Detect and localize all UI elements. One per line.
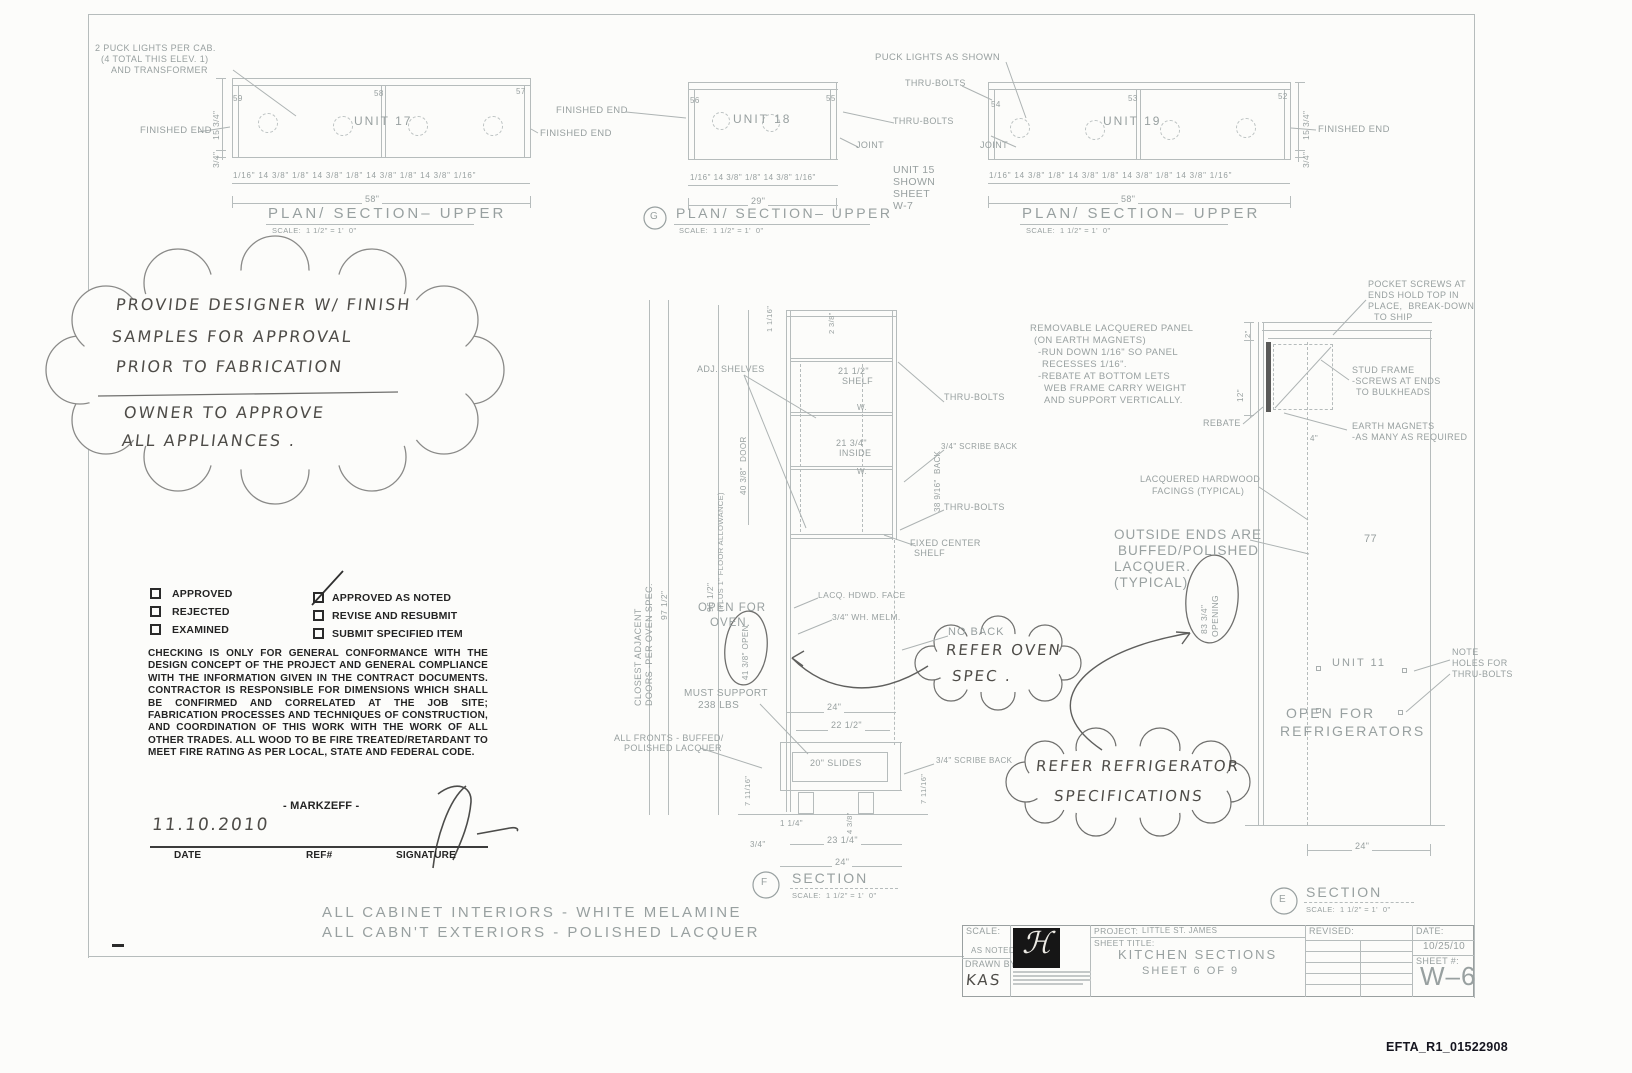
- shelf-line: [790, 538, 892, 539]
- ln: [1305, 940, 1412, 941]
- panel-mark: 54: [991, 101, 1001, 110]
- stud-frame-note: -SCREWS AT ENDS: [1352, 377, 1441, 387]
- dim-line: [988, 203, 1290, 204]
- fridge-spec-cloud: [1006, 728, 1250, 836]
- ln: [688, 82, 689, 160]
- sheet-title: KITCHEN SECTIONS: [1118, 948, 1277, 962]
- border-bottom: [88, 956, 964, 957]
- ln: [688, 82, 838, 83]
- shelf-line: [790, 361, 892, 362]
- dim-note: CLOSEST ADJACENT: [634, 608, 644, 706]
- shelf-line: [790, 466, 892, 467]
- titleblock-label: REVISED:: [1309, 927, 1354, 937]
- dim-label: (PLUS 1" FLOOR ALLOWANCE): [717, 492, 725, 612]
- shelf-line: [790, 415, 892, 416]
- floor-line: [1245, 825, 1445, 826]
- unit-label: UNIT 19: [1103, 115, 1161, 128]
- removable-panel-note: (ON EARTH MAGNETS): [1034, 336, 1146, 346]
- unit-label: UNIT 18: [733, 113, 791, 126]
- dim-label: 40 3/8" DOOR: [740, 436, 749, 495]
- ln: [232, 78, 233, 158]
- cloud-note-line: SAMPLES FOR APPROVAL: [111, 328, 353, 345]
- dim-label: 3/4": [212, 152, 221, 168]
- checkbox-submit-item: [313, 628, 324, 639]
- dim-label: 4": [1310, 435, 1318, 444]
- fridge-spec-arrow: [1070, 632, 1190, 750]
- ln: [1305, 925, 1306, 997]
- puck-light: [1236, 118, 1256, 138]
- finished-end-label: FINISHED END: [140, 126, 212, 136]
- adj-shelves-label: ADJ. SHELVES: [697, 365, 765, 375]
- thru-bolts-label: THRU-BOLTS: [944, 393, 1005, 403]
- checkbox-rejected: [150, 606, 161, 617]
- shelf-line: [790, 469, 892, 470]
- unit15-note: W-7: [893, 201, 913, 212]
- stamp-field-label: DATE: [174, 851, 201, 862]
- dim-label: 7 11/16": [920, 774, 928, 804]
- dim-label: 38 9/16" BACK: [934, 451, 943, 512]
- view-title: SECTION: [792, 871, 868, 886]
- ln: [790, 310, 791, 812]
- ln: [780, 742, 781, 790]
- material-label: 3/4" WH. MELM.: [832, 613, 901, 622]
- shelf-line: [790, 534, 892, 535]
- border-top: [88, 14, 1474, 15]
- oven-spec-arrow: [792, 651, 928, 688]
- ln: [530, 196, 531, 208]
- panel-mark: 55: [826, 95, 836, 104]
- dim-label: 1 1/4": [780, 820, 803, 829]
- ln: [1295, 82, 1305, 83]
- cloud-text: SPEC .: [951, 668, 1013, 684]
- sheet-subtitle: SHEET 6 OF 9: [1142, 966, 1239, 978]
- dim-label: 77: [1364, 534, 1377, 546]
- dim-label: 12": [1237, 389, 1246, 402]
- joint-label: JOINT: [980, 141, 1008, 151]
- ln: [1244, 415, 1254, 416]
- stud-frame-note: STUD FRAME: [1352, 366, 1415, 376]
- ln: [1244, 340, 1254, 341]
- holes-note: HOLES FOR: [1452, 659, 1508, 669]
- dim-string: 1/16" 14 3/8" 1/8" 14 3/8" 1/8" 14 3/8" …: [230, 172, 479, 181]
- dim-line: [232, 183, 530, 184]
- titleblock-label: PROJECT:: [1094, 927, 1138, 936]
- puck-light: [712, 112, 730, 130]
- unit-label: UNIT 17: [354, 115, 412, 128]
- ln: [1305, 973, 1412, 974]
- handwritten-rule: [98, 392, 398, 396]
- dim-label: INSIDE: [839, 449, 871, 459]
- dim-line: [988, 183, 1290, 184]
- ln: [988, 196, 989, 208]
- ln: [1263, 322, 1264, 825]
- dim-string: 1/16" 14 3/8" 1/8" 14 3/8" 1/16": [687, 174, 819, 183]
- cloud-note-line: OWNER TO APPROVE: [123, 404, 326, 421]
- ln: [1290, 82, 1291, 160]
- logo-fine-print: [1013, 975, 1091, 977]
- unit-label: UNIT 11: [1332, 658, 1386, 670]
- support-note: MUST SUPPORT: [684, 689, 768, 700]
- logo-fine-print: [1013, 971, 1091, 973]
- cabinet-leg: [858, 792, 874, 814]
- ln: [894, 540, 895, 745]
- ln: [1430, 330, 1431, 825]
- handwritten-date: 11.10.2010: [151, 816, 270, 834]
- fixed-shelf-label: SHELF: [914, 549, 945, 559]
- panel-mark: 59: [233, 95, 243, 104]
- pocket-screws-note: POCKET SCREWS AT: [1368, 280, 1466, 290]
- finished-end-label: FINISHED END: [1318, 125, 1390, 135]
- ln: [1305, 951, 1412, 952]
- rebate-label: REBATE: [1203, 419, 1241, 429]
- puck-shown-note: PUCK LIGHTS AS SHOWN: [875, 53, 1000, 63]
- cloud-text: REFER OVEN: [945, 642, 1062, 658]
- titleblock-label: DRAWN BY: [965, 960, 1016, 970]
- view-scale: SCALE: 1 1/2" = 1' 0": [679, 227, 764, 235]
- cloud-note-line: PRIOR TO FABRICATION: [115, 358, 344, 375]
- view-title: SECTION: [1306, 885, 1382, 900]
- titleblock-value: AS NOTED: [971, 947, 1015, 956]
- holes-note: NOTE: [1452, 648, 1479, 658]
- checkbox-approved-as-noted: [313, 592, 324, 603]
- dim-label: SHELF: [842, 377, 873, 387]
- outside-ends-note: BUFFED/POLISHED: [1118, 544, 1259, 559]
- stud-frame-bar: [1266, 342, 1271, 412]
- dim-label: 24": [1352, 842, 1372, 852]
- removable-panel-note: -RUN DOWN 1/16" SO PANEL: [1038, 348, 1178, 358]
- ln: [786, 310, 787, 812]
- dim-note: DOORS -PER OVEN SPEC.: [645, 583, 655, 706]
- titleblock-label: SCALE:: [966, 927, 1000, 937]
- outside-ends-note: (TYPICAL): [1114, 576, 1188, 591]
- dim-label: 15 3/4": [212, 111, 221, 140]
- pocket-screws-note: TO SHIP: [1374, 313, 1413, 323]
- general-note: ALL CABN'T EXTERIORS - POLISHED LACQUER: [322, 925, 760, 941]
- puck-light-note: AND TRANSFORMER: [111, 66, 208, 76]
- watermark-id: EFTA_R1_01522908: [1386, 1040, 1508, 1054]
- stud-frame-box: [1273, 344, 1333, 410]
- thru-bolts-label: THRU-BOLTS: [905, 79, 966, 89]
- dim-line: [688, 185, 838, 186]
- logo-fine-print: [1013, 979, 1091, 981]
- ln: [896, 310, 897, 540]
- shelf-w-mark: W.: [857, 404, 867, 413]
- ln: [1307, 342, 1308, 825]
- removable-panel-note: RECESSES 1/16".: [1042, 360, 1127, 370]
- holes-note: THRU-BOLTS: [1452, 670, 1513, 680]
- dim-label: 15 3/4": [1302, 111, 1311, 140]
- drawing-sheet: 2 PUCK LIGHTS PER CAB. (4 TOTAL THIS ELE…: [0, 0, 1632, 1073]
- dim-label: 22 1/2": [828, 721, 865, 731]
- thru-bolt-hole: [1398, 710, 1403, 715]
- dim-label: 3/4": [750, 841, 766, 850]
- ln: [892, 310, 893, 540]
- section-mark-letter: E: [1279, 895, 1286, 906]
- shelf-w-mark: W.: [857, 468, 867, 477]
- scribe-back-label: 3/4" SCRIBE BACK: [941, 443, 1017, 452]
- opening-dim: 41 3/8" OPEN: [742, 625, 751, 680]
- pin-line: [800, 364, 801, 532]
- puck-light: [483, 116, 503, 136]
- border-right: [1474, 14, 1475, 998]
- stamp-option: APPROVED: [172, 589, 233, 600]
- stamp-option: SUBMIT SPECIFIED ITEM: [332, 629, 463, 640]
- unit15-note: UNIT 15: [893, 165, 935, 176]
- ln: [1430, 844, 1431, 856]
- puck-light-note: (4 TOTAL THIS ELEV. 1): [101, 55, 209, 65]
- dim-label: 23 1/4": [824, 836, 861, 846]
- finished-end-label: FINISHED END: [540, 129, 612, 139]
- facings-note: LACQUERED HARDWOOD: [1140, 475, 1260, 485]
- section-marker-circles: [644, 207, 1297, 914]
- ln: [786, 310, 896, 311]
- ln: [232, 78, 530, 79]
- pocket-screws-note: PLACE, BREAK-DOWN: [1368, 302, 1474, 312]
- stamp-option: APPROVED AS NOTED: [332, 593, 451, 604]
- overall-dim: 58": [362, 195, 382, 205]
- stamp-option: REJECTED: [172, 607, 230, 618]
- ln: [900, 742, 901, 790]
- ln: [988, 82, 1290, 83]
- no-back-label: NO BACK: [948, 627, 1005, 639]
- ln: [1258, 322, 1259, 825]
- cloud-text: REFER REFRIGERATOR: [1035, 758, 1241, 774]
- support-note: 238 LBS: [698, 701, 739, 712]
- panel-mark: 53: [1128, 95, 1138, 104]
- ln: [1268, 338, 1432, 339]
- dim-label: 24": [824, 703, 844, 713]
- section-mark-letter: G: [650, 212, 658, 223]
- thru-bolts-label: THRU-BOLTS: [944, 503, 1005, 513]
- title-underline: [1304, 902, 1414, 903]
- panel-mark: 57: [516, 88, 526, 97]
- floor-line: [738, 814, 928, 815]
- cloud-note-line: PROVIDE DESIGNER W/ FINISH: [115, 296, 412, 313]
- pocket-screws-note: ENDS HOLD TOP IN: [1368, 291, 1459, 301]
- removable-panel-note: -REBATE AT BOTTOM LETS: [1038, 372, 1170, 382]
- slides-label: 20" SLIDES: [810, 759, 862, 769]
- ln: [1412, 925, 1413, 997]
- opening-dim: 83 3/4": [1200, 605, 1209, 634]
- stud-frame-note: TO BULKHEADS: [1356, 388, 1430, 398]
- outside-ends-note: OUTSIDE ENDS ARE: [1114, 528, 1262, 543]
- ln: [1290, 196, 1291, 208]
- dim-label: 1 1/16": [766, 306, 774, 332]
- ln: [1307, 844, 1308, 856]
- stamp-field-label: REF#: [306, 851, 332, 862]
- project-name: LITTLE ST. JAMES: [1142, 927, 1217, 936]
- joint-label: JOINT: [856, 141, 884, 151]
- ln: [232, 196, 233, 208]
- panel-mark: 56: [690, 97, 700, 106]
- ln: [232, 157, 530, 158]
- border-left: [88, 14, 89, 958]
- drawn-by-initials: KAS: [965, 972, 1002, 988]
- sheet-number: W–6: [1420, 962, 1476, 990]
- section-mark-letter: F: [761, 878, 768, 889]
- panel-mark: 58: [374, 90, 384, 99]
- signature-line: [150, 846, 488, 848]
- ln: [688, 159, 838, 160]
- stamp-body-text: CHECKING IS ONLY FOR GENERAL CONFORMANCE…: [148, 648, 488, 760]
- puck-light: [1160, 120, 1180, 140]
- firm-logo: ℋ: [1013, 928, 1060, 968]
- cabinet-leg: [798, 792, 814, 814]
- dim-label: 2": [1244, 330, 1252, 338]
- stamp-field-label: SIGNATURE: [396, 851, 456, 862]
- dim-label: 7 11/16": [744, 776, 752, 806]
- removable-panel-note: AND SUPPORT VERTICALLY.: [1044, 396, 1183, 406]
- removable-panel-note: WEB FRAME CARRY WEIGHT: [1044, 384, 1187, 394]
- ln: [222, 78, 223, 160]
- open-for-oven-label: OPEN FOR: [698, 602, 766, 614]
- unit15-note: SHEET: [893, 189, 930, 200]
- general-note: ALL CABINET INTERIORS - WHITE MELAMINE: [322, 905, 742, 921]
- puck-light: [258, 113, 278, 133]
- firm-logo-monogram: ℋ: [1022, 926, 1052, 961]
- ln: [988, 159, 1290, 160]
- dim-label: 3/4": [1302, 152, 1311, 168]
- ln: [780, 742, 902, 743]
- view-title: PLAN/ SECTION– UPPER: [676, 206, 893, 221]
- ln: [530, 78, 531, 158]
- ln: [1262, 330, 1432, 331]
- unit15-note: SHOWN: [893, 177, 935, 188]
- ln: [780, 790, 902, 791]
- dim-label: 2 3/8": [828, 312, 836, 334]
- earth-magnets-note: EARTH MAGNETS: [1352, 422, 1435, 432]
- checkbox-examined: [150, 624, 161, 635]
- ln: [1305, 962, 1412, 963]
- logo-fine-print: [1013, 983, 1083, 985]
- title-underline: [674, 224, 870, 225]
- registration-dash: [112, 944, 124, 947]
- opening-dim: OPENING: [1211, 595, 1220, 637]
- dim-label: 4 3/8": [846, 812, 854, 834]
- ln: [836, 82, 837, 160]
- view-title: PLAN/ SECTION– UPPER: [1022, 206, 1260, 222]
- title-underline: [790, 888, 898, 889]
- cloud-note-line: ALL APPLIANCES .: [121, 432, 297, 449]
- checkbox-revise-resubmit: [313, 610, 324, 621]
- puck-light: [333, 116, 353, 136]
- shelf-line: [790, 358, 892, 359]
- fronts-note: POLISHED LACQUER: [624, 744, 722, 754]
- stamp-firm-name: - MARKZEFF -: [283, 801, 359, 813]
- ln: [1360, 940, 1361, 997]
- view-scale: SCALE: 1 1/2" = 1' 0": [1026, 227, 1111, 235]
- checkbox-approved: [150, 588, 161, 599]
- cloud-text: SPECIFICATIONS: [1053, 788, 1204, 804]
- puck-light: [1010, 118, 1030, 138]
- stamp-option: EXAMINED: [172, 625, 229, 636]
- overall-dim: 58": [1118, 195, 1138, 205]
- ln: [1244, 322, 1254, 323]
- scribe-back-label: 3/4" SCRIBE BACK: [936, 757, 1012, 766]
- title-underline: [266, 224, 474, 225]
- view-scale: SCALE: 1 1/2" = 1' 0": [272, 227, 357, 235]
- view-scale: SCALE: 1 1/2" = 1' 0": [1306, 906, 1391, 914]
- ln: [1305, 984, 1412, 985]
- facings-note: FACINGS (TYPICAL): [1152, 487, 1244, 497]
- dim-label: 97 1/2": [660, 591, 669, 620]
- ln: [1090, 925, 1091, 997]
- ln: [786, 316, 896, 317]
- open-for-fridge-label: REFRIGERATORS: [1280, 724, 1425, 739]
- view-scale: SCALE: 1 1/2" = 1' 0": [792, 892, 877, 900]
- finished-end-label: FINISHED END: [556, 106, 628, 116]
- earth-magnets-note: -AS MANY AS REQUIRED: [1352, 433, 1467, 443]
- thru-bolt-hole: [1402, 668, 1407, 673]
- puck-light: [1085, 120, 1105, 140]
- ln: [988, 89, 1290, 90]
- thru-bolts-label: THRU-BOLTS: [893, 117, 954, 127]
- view-title: PLAN/ SECTION– UPPER: [268, 206, 506, 222]
- panel-mark: 52: [1278, 93, 1288, 102]
- open-for-fridge-label: OPEN FOR: [1286, 706, 1375, 721]
- shelf-line: [790, 412, 892, 413]
- material-label: LACQ. HDWD. FACE: [818, 591, 906, 600]
- titleblock-label: DATE:: [1416, 927, 1444, 937]
- ln: [688, 89, 838, 90]
- stamp-option: REVISE AND RESUBMIT: [332, 611, 457, 622]
- outside-ends-note: LACQUER.: [1114, 560, 1191, 575]
- removable-panel-note: REMOVABLE LACQUERED PANEL: [1030, 324, 1193, 334]
- dim-string: 1/16" 14 3/8" 1/8" 14 3/8" 1/8" 14 3/8" …: [986, 172, 1235, 181]
- puck-light-note: 2 PUCK LIGHTS PER CAB.: [95, 44, 216, 54]
- thru-bolt-hole: [1316, 666, 1321, 671]
- title-underline: [1020, 224, 1228, 225]
- sheet-date: 10/25/10: [1423, 942, 1465, 953]
- ln: [216, 78, 226, 79]
- dim-label: 24": [832, 858, 852, 868]
